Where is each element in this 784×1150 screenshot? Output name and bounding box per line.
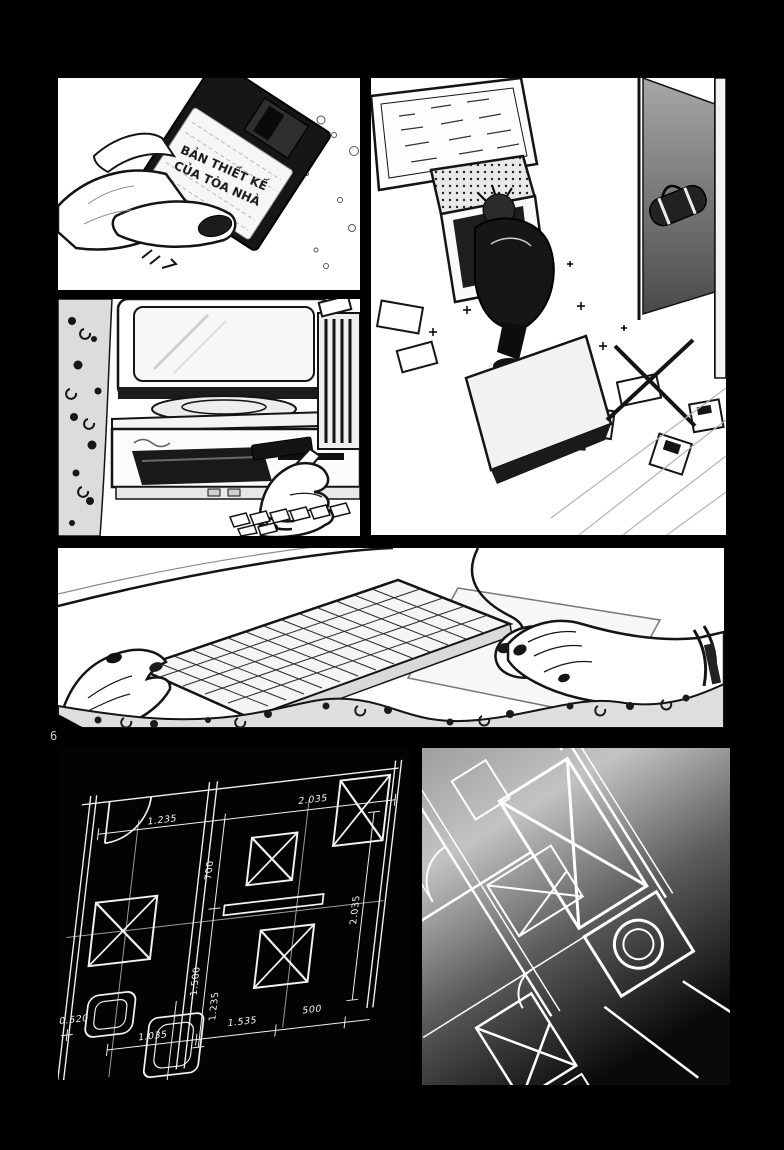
panel-blueprint-dark: 1.235 2.035 700 1.500 2.035 20.520 1.235…: [58, 747, 410, 1080]
panel-floppy-disk: BẢN THIẾT KẾ CỦA TÒA NHÀ: [58, 78, 360, 290]
panel-keyboard-mouse: [58, 548, 724, 728]
panel-computer: [58, 299, 360, 536]
panel-blueprint-zoom: [422, 748, 730, 1085]
blueprint-zoom-art: [422, 748, 730, 1085]
panel-ransacked-room: [371, 78, 726, 535]
manga-page: 6: [0, 0, 784, 1150]
blueprint-art: 1.235 2.035 700 1.500 2.035 20.520 1.235…: [58, 747, 410, 1080]
monitor-screen: [134, 307, 314, 381]
keyboard-panel-art: [58, 548, 724, 728]
computer-panel-art: [58, 299, 360, 536]
floppy-panel-art: BẢN THIẾT KẾ CỦA TÒA NHÀ: [58, 78, 360, 290]
bookshelf: [318, 299, 360, 449]
page-number: 6: [50, 729, 57, 743]
drive-bay: [132, 447, 272, 485]
screen-glow: [422, 748, 730, 1085]
room-panel-art: [371, 78, 726, 535]
